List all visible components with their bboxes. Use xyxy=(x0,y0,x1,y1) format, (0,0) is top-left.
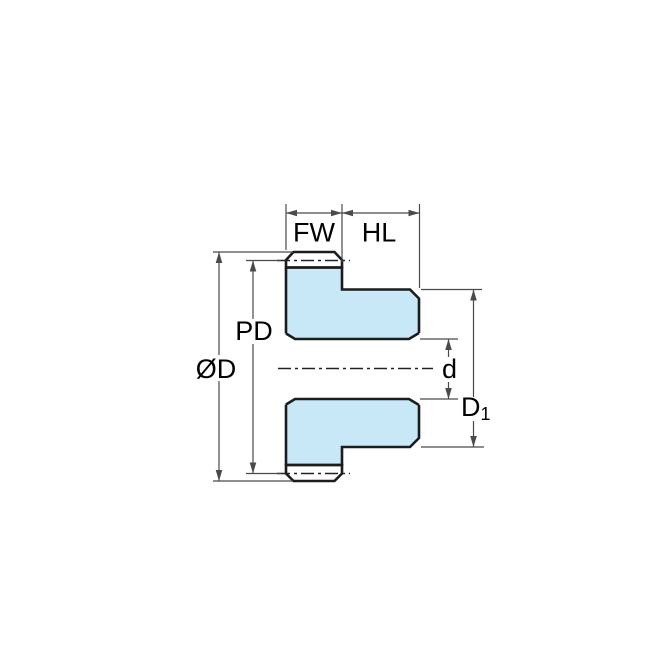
hl-arrow-left xyxy=(342,210,353,217)
od-arrow-bottom xyxy=(216,470,223,481)
technical-drawing: FW HL PD ØD d D1 xyxy=(0,0,670,670)
d-label: d xyxy=(442,354,457,384)
gear-part xyxy=(286,252,419,481)
fw-arrow-left xyxy=(286,210,297,217)
pd-arrow-bottom xyxy=(250,463,257,474)
d-arrow-bottom xyxy=(445,388,452,399)
hl-arrow-right xyxy=(409,210,420,217)
d-arrow-top xyxy=(445,339,452,350)
d1-arrow-top xyxy=(470,290,477,301)
od-arrow-top xyxy=(216,252,223,263)
pd-arrow-top xyxy=(250,261,257,272)
fw-arrow-right xyxy=(331,210,342,217)
d1-label: D1 xyxy=(461,392,491,424)
gear-dimension-diagram: FW HL PD ØD d D1 xyxy=(0,0,670,670)
d1-label-subscript: 1 xyxy=(481,404,491,424)
pd-label: PD xyxy=(235,316,273,346)
d1-label-base: D xyxy=(461,392,481,422)
fw-label: FW xyxy=(293,218,335,248)
hl-label: HL xyxy=(362,218,397,248)
od-label: ØD xyxy=(196,354,237,384)
d1-arrow-bottom xyxy=(470,436,477,447)
